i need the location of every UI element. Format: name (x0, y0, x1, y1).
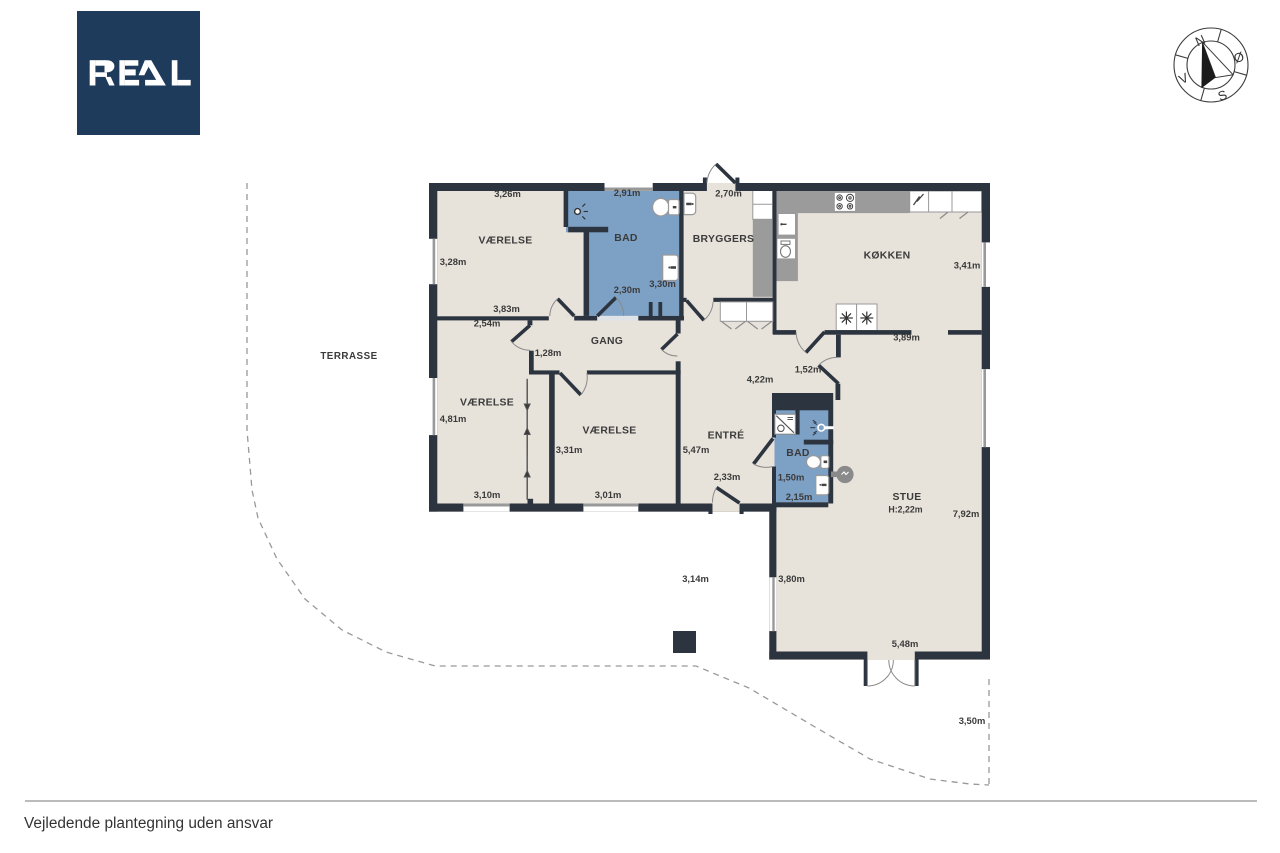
svg-text:3,41m: 3,41m (954, 260, 981, 271)
svg-text:3,30m: 3,30m (649, 278, 676, 289)
svg-text:2,70m: 2,70m (715, 188, 742, 199)
svg-text:1,50m: 1,50m (778, 472, 805, 483)
svg-text:VÆRELSE: VÆRELSE (460, 398, 514, 409)
svg-text:1,52m: 1,52m (795, 364, 822, 375)
svg-text:BAD: BAD (786, 448, 810, 459)
svg-text:3,10m: 3,10m (474, 489, 501, 500)
svg-text:5,48m: 5,48m (892, 638, 919, 649)
svg-text:2,33m: 2,33m (714, 471, 741, 482)
svg-text:5,47m: 5,47m (683, 444, 710, 455)
svg-text:2,30m: 2,30m (614, 284, 641, 295)
svg-text:2,91m: 2,91m (614, 187, 641, 198)
svg-text:7,92m: 7,92m (953, 508, 980, 519)
svg-text:3,14m: 3,14m (682, 573, 709, 584)
svg-text:2,54m: 2,54m (474, 318, 501, 329)
svg-text:H:2,22m: H:2,22m (888, 505, 922, 515)
svg-text:3,26m: 3,26m (494, 188, 521, 199)
svg-text:GANG: GANG (591, 336, 623, 347)
svg-text:2,15m: 2,15m (786, 491, 813, 502)
svg-text:3,83m: 3,83m (493, 303, 520, 314)
svg-text:3,01m: 3,01m (595, 489, 622, 500)
svg-text:Vejledende plantegning uden an: Vejledende plantegning uden ansvar (24, 815, 273, 832)
svg-text:TERRASSE: TERRASSE (320, 351, 377, 362)
svg-text:4,22m: 4,22m (747, 374, 774, 385)
svg-text:VÆRELSE: VÆRELSE (478, 236, 532, 247)
svg-text:KØKKEN: KØKKEN (864, 251, 911, 262)
svg-text:ENTRÉ: ENTRÉ (708, 429, 745, 442)
svg-text:4,81m: 4,81m (440, 413, 467, 424)
svg-text:BRYGGERS: BRYGGERS (693, 234, 754, 245)
svg-text:3,31m: 3,31m (556, 444, 583, 455)
svg-text:3,80m: 3,80m (778, 573, 805, 584)
svg-text:3,89m: 3,89m (893, 332, 920, 343)
svg-text:BAD: BAD (614, 233, 638, 244)
svg-text:3,50m: 3,50m (959, 715, 986, 726)
svg-text:STUE: STUE (893, 492, 922, 503)
svg-text:VÆRELSE: VÆRELSE (582, 426, 636, 437)
svg-text:1,28m: 1,28m (535, 347, 562, 358)
svg-text:3,28m: 3,28m (440, 256, 467, 267)
